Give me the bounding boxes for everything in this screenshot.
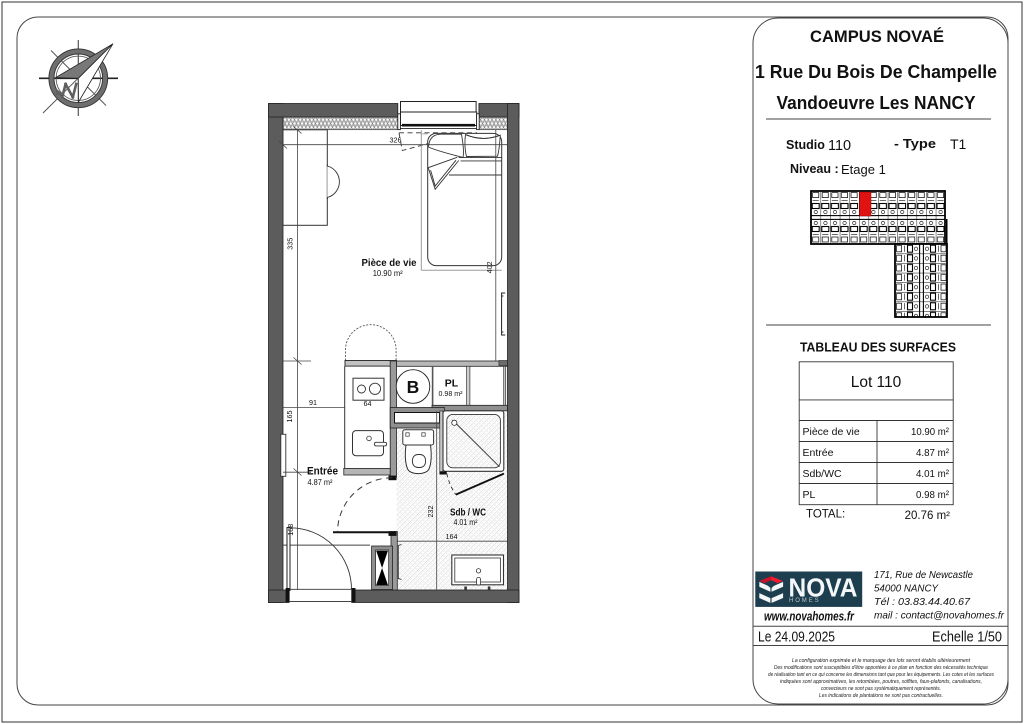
svg-text:Etage 1: Etage 1 — [841, 162, 886, 177]
svg-text:326: 326 — [390, 136, 402, 145]
svg-text:10.90 m²: 10.90 m² — [373, 269, 403, 278]
svg-text:indiquées sont approximatives,: indiquées sont approximatives, les retom… — [780, 679, 982, 685]
svg-text:Lot 110: Lot 110 — [851, 374, 902, 391]
svg-text:Vandoeuvre Les NANCY: Vandoeuvre Les NANCY — [777, 92, 977, 113]
svg-text:4.87 m²: 4.87 m² — [916, 447, 949, 459]
svg-text:TABLEAU DES SURFACES: TABLEAU DES SURFACES — [800, 340, 956, 355]
svg-text:402: 402 — [485, 261, 494, 273]
svg-text:335: 335 — [285, 238, 294, 250]
svg-text:www.novahomes.fr: www.novahomes.fr — [764, 610, 855, 624]
svg-text:B: B — [407, 377, 420, 397]
svg-text:CAMPUS NOVAÉ: CAMPUS NOVAÉ — [810, 27, 944, 46]
svg-text:Niveau :: Niveau : — [790, 162, 839, 176]
svg-text:mail : contact@novahomes.fr: mail : contact@novahomes.fr — [874, 610, 1004, 622]
svg-text:20.76 m²: 20.76 m² — [905, 510, 951, 522]
svg-text:54000 NANCY: 54000 NANCY — [874, 583, 939, 595]
svg-text:Pièce de vie: Pièce de vie — [803, 426, 860, 438]
svg-text:Le 24.09.2025: Le 24.09.2025 — [758, 630, 835, 646]
svg-text:Entrée: Entrée — [307, 466, 338, 478]
svg-text:165: 165 — [285, 411, 294, 423]
svg-text:- Type: - Type — [894, 137, 936, 151]
svg-text:Sdb / WC: Sdb / WC — [450, 507, 486, 519]
svg-text:4.01 m²: 4.01 m² — [916, 468, 949, 480]
svg-text:Studio: Studio — [786, 138, 825, 152]
svg-text:0.98 m²: 0.98 m² — [439, 389, 463, 398]
svg-text:convecteurs ne sont pas systém: convecteurs ne sont pas systématiquement… — [821, 686, 941, 692]
svg-text:4.01 m²: 4.01 m² — [454, 518, 478, 527]
svg-text:de réalisation tant en ce qui: de réalisation tant en ce qui concerne l… — [768, 672, 994, 678]
svg-text:Tél : 03.83.44.40.67: Tél : 03.83.44.40.67 — [874, 596, 971, 608]
svg-text:PL: PL — [445, 378, 459, 390]
svg-text:TOTAL:: TOTAL: — [806, 509, 845, 521]
svg-text:Echelle 1/50: Echelle 1/50 — [932, 630, 1002, 646]
svg-text:4.87 m²: 4.87 m² — [308, 478, 333, 487]
svg-text:232: 232 — [426, 506, 435, 518]
svg-text:PL: PL — [803, 489, 816, 501]
svg-text:171, Rue de Newcastle: 171, Rue de Newcastle — [874, 569, 973, 581]
svg-text:Pièce de vie: Pièce de vie — [362, 257, 417, 269]
svg-text:HOMES: HOMES — [789, 598, 821, 604]
svg-text:0.98 m²: 0.98 m² — [916, 489, 949, 501]
svg-text:T1: T1 — [950, 136, 967, 152]
svg-text:91: 91 — [309, 398, 317, 407]
svg-text:10.90 m²: 10.90 m² — [911, 426, 949, 438]
svg-text:110: 110 — [828, 138, 851, 154]
svg-text:Entrée: Entrée — [803, 447, 834, 459]
svg-text:La configuration exprimée et l: La configuration exprimée et le marquage… — [792, 658, 970, 664]
svg-text:1 Rue Du Bois De Champelle: 1 Rue Du Bois De Champelle — [755, 61, 997, 82]
svg-text:168: 168 — [286, 524, 295, 536]
svg-text:164: 164 — [446, 532, 458, 541]
svg-text:Les indications de plantations: Les indications de plantations ne sont p… — [819, 693, 943, 699]
svg-text:64: 64 — [364, 399, 372, 408]
svg-text:Sdb/WC: Sdb/WC — [803, 468, 843, 480]
svg-text:Des modifications sont suscept: Des modifications sont susceptibles d'êt… — [774, 665, 988, 671]
